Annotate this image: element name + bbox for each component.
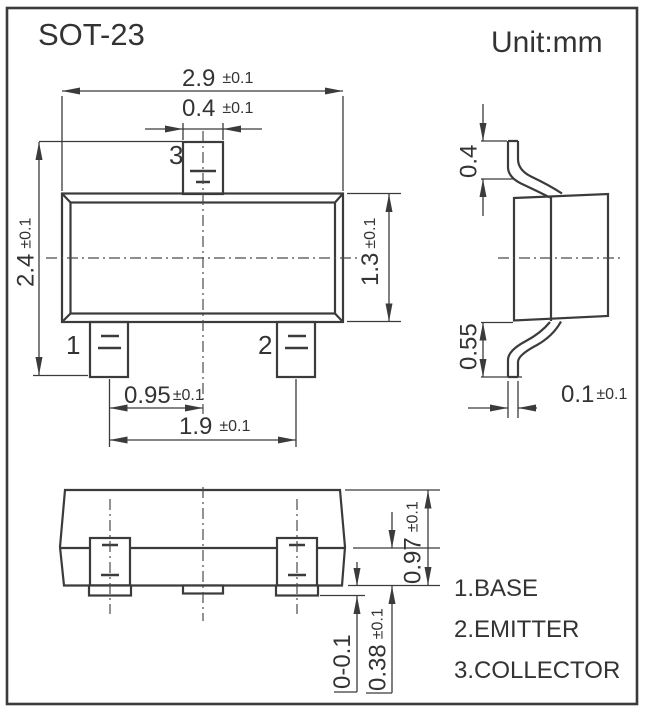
dim-lead-bottom: 0.55 (456, 323, 483, 370)
dim-lead-thickness-tol: ±0.1 (596, 386, 627, 403)
dim-lead-top: 0.4 (456, 145, 483, 178)
dim-lead-top-lines (481, 104, 515, 216)
side-view (508, 141, 608, 377)
pin-function-legend: 1.BASE 2.EMITTER 3.COLLECTOR (454, 575, 620, 684)
dim-body-width-tol: ±0.1 (222, 70, 253, 87)
dim-pin3-width-tol: ±0.1 (222, 100, 253, 117)
dim-lead-top-value: 0.4 (456, 145, 483, 178)
dim-body-depth-value: 1.3 (357, 253, 384, 286)
top-view-pin2 (277, 322, 315, 377)
front-view-centerlines (110, 487, 297, 621)
dim-pin3-width-value: 0.4 (182, 95, 215, 122)
dim-overall-width-tol: ±0.1 (18, 218, 35, 249)
dim-overall-width: 2.4±0.1 (13, 218, 40, 288)
unit-label: Unit:mm (491, 26, 603, 59)
dim-lead-height: 0.38±0.1 (365, 608, 392, 691)
dim-lead-height-value: 0.38 (365, 644, 392, 691)
dim-lead-thickness: 0.1±0.1 (561, 381, 628, 408)
dim-pin-pitch: 0.95±0.1 (124, 382, 204, 409)
dim-standoff-value: 0-0.1 (329, 634, 356, 689)
dim-pin-pitch-value: 0.95 (124, 382, 171, 409)
dim-lead-height-tol: ±0.1 (370, 608, 387, 639)
dim-pin-span: 1.9±0.1 (179, 413, 251, 440)
side-view-top-lead (508, 141, 562, 198)
legend-emitter: 2.EMITTER (454, 616, 579, 643)
top-view-pin1 (90, 322, 128, 377)
dim-body-depth: 1.3±0.1 (357, 218, 384, 287)
dim-body-width-value: 2.9 (182, 65, 215, 92)
dim-standoff: 0-0.1 (329, 634, 356, 689)
dim-body-depth-tol: ±0.1 (362, 218, 379, 249)
dim-pin3-width: 0.4±0.1 (182, 95, 254, 122)
dim-pkg-height-tol: ±0.1 (405, 501, 422, 532)
dim-lead-bottom-value: 0.55 (456, 323, 483, 370)
dim-pkg-height-value: 0.97 (400, 537, 427, 584)
package-title: SOT-23 (38, 17, 145, 52)
side-view-bottom-lead (508, 322, 561, 378)
pin2-label: 2 (258, 330, 272, 360)
dim-pkg-height: 0.97±0.1 (400, 501, 427, 584)
dim-overall-width-value: 2.4 (13, 254, 40, 287)
dim-pin-span-tol: ±0.1 (219, 418, 250, 435)
dim-lead-bottom-lines (481, 323, 522, 378)
dim-body-width: 2.9±0.1 (182, 65, 254, 92)
pin3-label: 3 (169, 140, 183, 170)
dim-pin-pitch-tol: ±0.1 (173, 387, 204, 404)
dim-lead-thickness-lines (468, 381, 537, 418)
legend-base: 1.BASE (454, 575, 538, 602)
sot23-package-drawing: SOT-23 Unit:mm (0, 0, 645, 715)
side-view-body (514, 194, 608, 321)
dim-pin-span-value: 1.9 (179, 413, 212, 440)
dim-lead-thickness-value: 0.1 (561, 381, 594, 408)
datasheet-page: SOT-23 Unit:mm (0, 0, 645, 715)
pin1-label: 1 (66, 330, 80, 360)
legend-collector: 3.COLLECTOR (454, 657, 620, 684)
